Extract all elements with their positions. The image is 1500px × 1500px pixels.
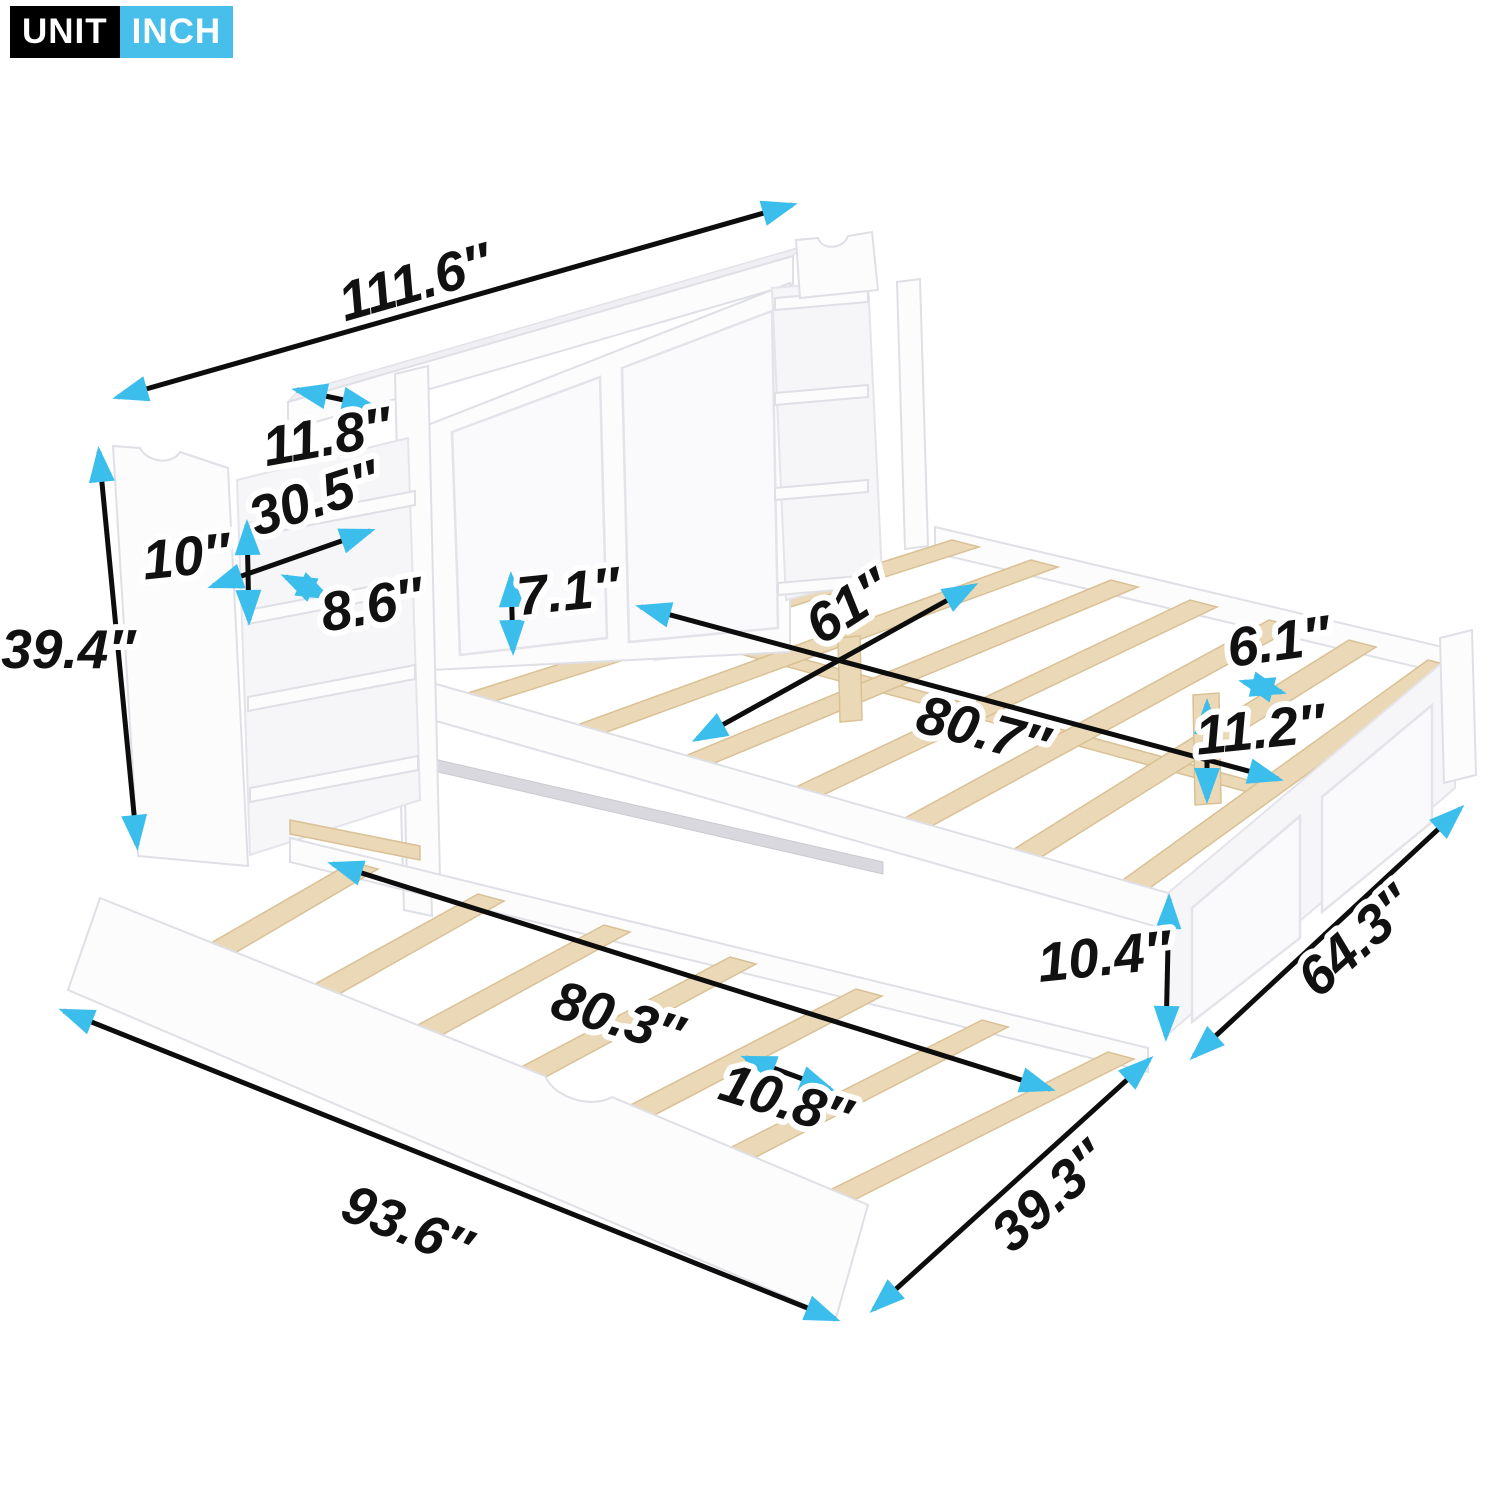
bookcase-top-board (796, 232, 878, 298)
dimension-label: 10″ (139, 520, 235, 591)
dimension-label: 10.4″ (1034, 918, 1176, 994)
unit-badge: UNIT INCH (10, 6, 233, 58)
bed-dimension-diagram: 111.6″ 11.8″ 30.5″ 10″ 8.6″ 39.4″ (0, 0, 1500, 1500)
dimension-side-rail-height: 10.4″ (1034, 899, 1176, 1036)
diagram-canvas: UNIT INCH (0, 0, 1500, 1500)
dimension-label: 7.1″ (514, 555, 625, 628)
unit-badge-value: INCH (120, 6, 234, 58)
headboard-panel (622, 311, 778, 642)
dimension-label: 39.4″ (1, 618, 137, 680)
dimension-line (247, 525, 249, 620)
dimension-trundle-width: 39.3″ (874, 1060, 1149, 1309)
dimension-label: 111.6″ (331, 230, 500, 333)
right-bookcase (772, 232, 928, 600)
dimension-label: 93.6″ (334, 1172, 483, 1280)
dimension-label: 80.7″ (910, 682, 1057, 777)
dimension-line (511, 577, 513, 650)
bed-corner-post (1440, 630, 1476, 783)
bookcase-back-panel (772, 280, 882, 600)
headboard-right-leg (897, 279, 928, 549)
unit-badge-label: UNIT (10, 6, 120, 58)
